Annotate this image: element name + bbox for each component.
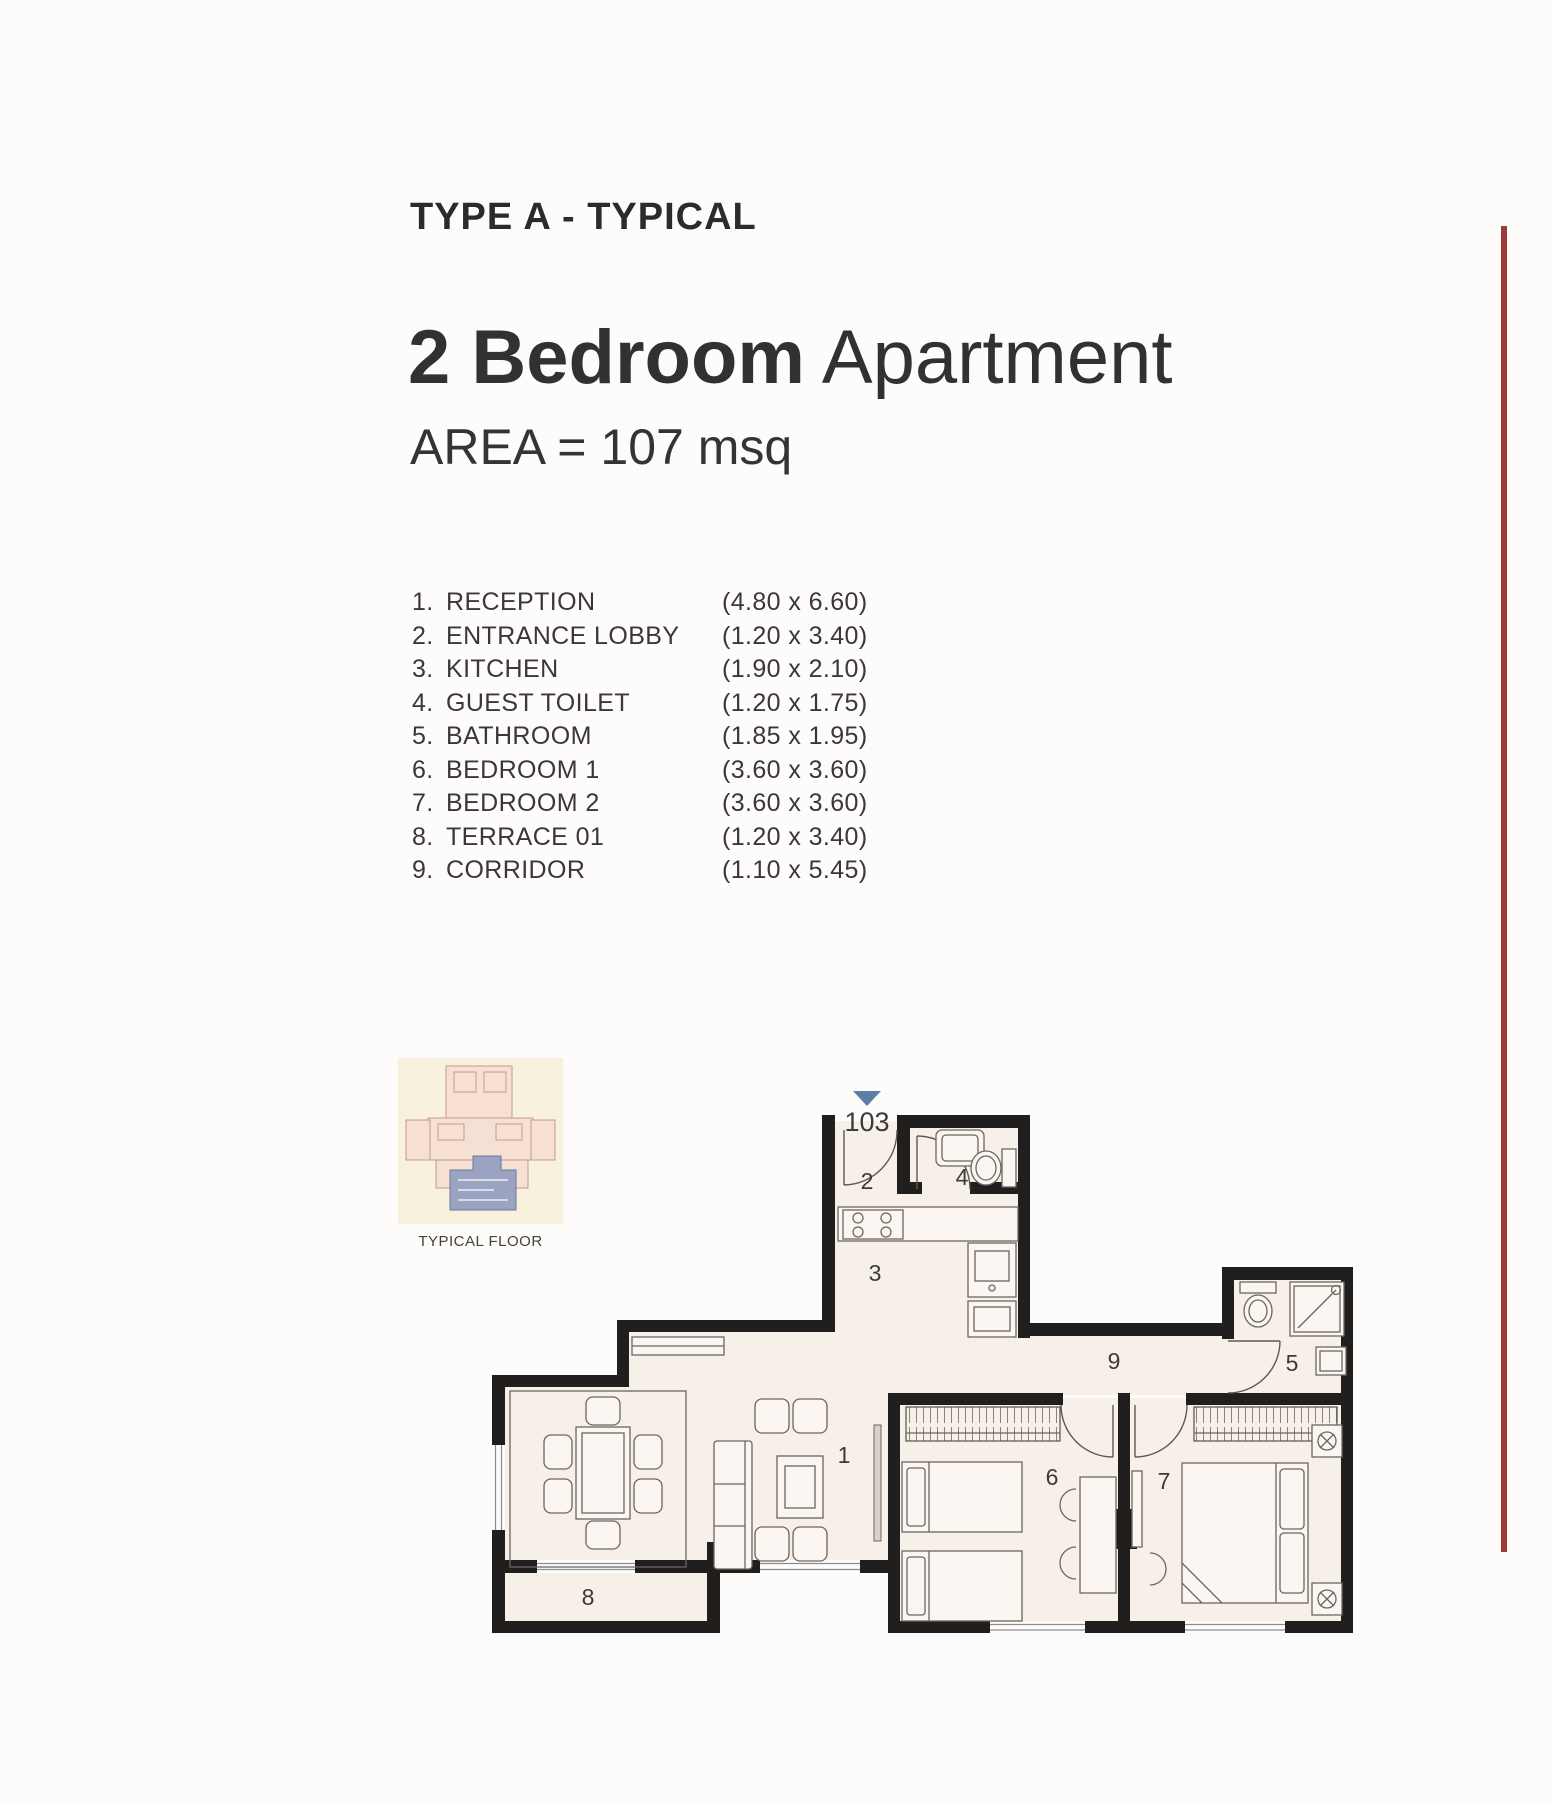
room-name: CORRIDOR	[446, 856, 585, 884]
corridor-label: 9	[1108, 1348, 1121, 1374]
bathroom-label: 5	[1286, 1350, 1299, 1376]
type-label: TYPE A - TYPICAL	[410, 196, 757, 239]
room-list: 1.RECEPTION (4.80 x 6.60) 2.ENTRANCE LOB…	[412, 588, 1012, 890]
kitchen-label: 3	[869, 1260, 882, 1286]
room-list-row: 8.TERRACE 01 (1.20 x 3.40)	[412, 823, 1012, 857]
room-name: KITCHEN	[446, 655, 559, 683]
room-number: 6.	[412, 756, 446, 785]
room-name: RECEPTION	[446, 588, 595, 616]
bedroom1-label: 6	[1046, 1464, 1059, 1490]
room-dimensions: (3.60 x 3.60)	[722, 789, 868, 818]
title-light: Apartment	[805, 315, 1173, 400]
room-list-row: 2.ENTRANCE LOBBY (1.20 x 3.40)	[412, 622, 1012, 656]
room-dimensions: (4.80 x 6.60)	[722, 588, 868, 617]
room-number: 9.	[412, 856, 446, 885]
area-line: AREA = 107 msq	[410, 418, 792, 476]
room-dimensions: (1.10 x 5.45)	[722, 856, 868, 885]
bedroom2-label: 7	[1158, 1468, 1171, 1494]
room-number: 1.	[412, 588, 446, 617]
page: TYPE A - TYPICAL 2 Bedroom Apartment ARE…	[0, 0, 1552, 1804]
room-number: 7.	[412, 789, 446, 818]
page-title: 2 Bedroom Apartment	[408, 314, 1173, 401]
entry-arrow-icon	[853, 1091, 881, 1106]
room-name: ENTRANCE LOBBY	[446, 622, 679, 650]
title-bold: 2 Bedroom	[408, 315, 805, 400]
room-list-row: 7.BEDROOM 2 (3.60 x 3.60)	[412, 789, 1012, 823]
room-dimensions: (1.20 x 1.75)	[722, 689, 868, 718]
room-dimensions: (1.85 x 1.95)	[722, 722, 868, 751]
room-name: TERRACE 01	[446, 823, 604, 851]
room-name: BATHROOM	[446, 722, 592, 750]
room-list-row: 4.GUEST TOILET (1.20 x 1.75)	[412, 689, 1012, 723]
reception-label: 1	[838, 1442, 851, 1468]
room-dimensions: (1.20 x 3.40)	[722, 622, 868, 651]
room-name: BEDROOM 2	[446, 789, 600, 817]
room-number: 8.	[412, 823, 446, 852]
floor-plan: 103 2 4 3 9 5 1 6 7 8	[430, 1085, 1365, 1645]
room-number: 5.	[412, 722, 446, 751]
room-number: 4.	[412, 689, 446, 718]
guest-toilet-label: 4	[956, 1164, 969, 1190]
room-list-row: 5.BATHROOM (1.85 x 1.95)	[412, 722, 1012, 756]
room-number: 3.	[412, 655, 446, 684]
room-list-row: 1.RECEPTION (4.80 x 6.60)	[412, 588, 1012, 622]
room-list-row: 3.KITCHEN (1.90 x 2.10)	[412, 655, 1012, 689]
lobby-label: 2	[861, 1168, 874, 1194]
tv-unit	[874, 1425, 881, 1541]
room-dimensions: (3.60 x 3.60)	[722, 756, 868, 785]
unit-number-label: 103	[844, 1107, 889, 1137]
room-list-row: 9.CORRIDOR (1.10 x 5.45)	[412, 856, 1012, 890]
room-dimensions: (1.20 x 3.40)	[722, 823, 868, 852]
room-name: BEDROOM 1	[446, 756, 600, 784]
accent-line	[1501, 226, 1507, 1552]
room-number: 2.	[412, 622, 446, 651]
room-dimensions: (1.90 x 2.10)	[722, 655, 868, 684]
room-name: GUEST TOILET	[446, 689, 630, 717]
room-list-row: 6.BEDROOM 1 (3.60 x 3.60)	[412, 756, 1012, 790]
terrace-label: 8	[582, 1584, 595, 1610]
